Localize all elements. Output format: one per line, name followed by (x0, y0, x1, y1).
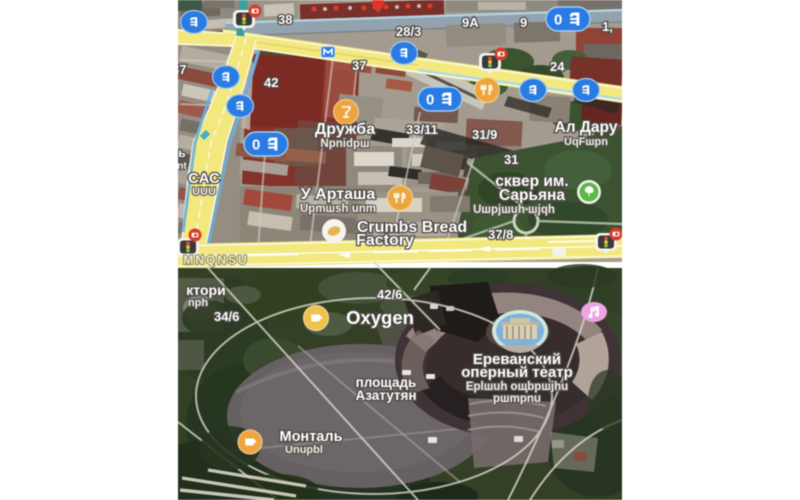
svg-text:Монталь: Монталь (280, 429, 343, 445)
svg-text:Eplшuh oщbpшjhu: Eplшuh oщbpшjhu (466, 381, 568, 393)
svg-text:34/6: 34/6 (214, 309, 239, 324)
svg-text:9: 9 (520, 15, 527, 30)
svg-text:ктори: ктори (186, 282, 225, 298)
svg-text:28/3: 28/3 (396, 24, 421, 39)
svg-text:0: 0 (554, 12, 562, 29)
svg-text:MNQNSU: MNQNSU (183, 253, 248, 267)
svg-text:Ал Дару: Ал Дару (555, 119, 618, 136)
svg-text:24: 24 (550, 59, 565, 74)
svg-text:42: 42 (264, 75, 278, 90)
svg-text:37: 37 (178, 62, 186, 77)
svg-text:Npnidpш: Npnidpш (320, 138, 369, 150)
svg-text:оперный театр: оперный театр (461, 364, 573, 381)
svg-text:31/9: 31/9 (472, 127, 497, 142)
svg-text:САС: САС (188, 170, 220, 187)
svg-text:Oxygen: Oxygen (346, 307, 414, 328)
svg-text:Unupbl: Unupbl (285, 444, 323, 456)
svg-text:33/11: 33/11 (406, 122, 438, 137)
svg-text:Uшpjшuh шjqh: Uшpjшuh шjqh (473, 204, 555, 216)
svg-text:37/8: 37/8 (488, 227, 513, 242)
svg-text:1,: 1, (602, 19, 613, 34)
svg-text:nph: nph (188, 297, 208, 309)
svg-text:ь: ь (178, 146, 185, 160)
svg-text:38: 38 (278, 12, 292, 27)
svg-text:ршmpnu: ршmpnu (493, 393, 541, 405)
svg-text:37: 37 (352, 58, 366, 73)
svg-text:Азатутян: Азатутян (355, 388, 416, 403)
svg-text:nt: nt (178, 161, 187, 172)
svg-text:UUU: UUU (192, 186, 216, 198)
svg-text:Upmшsh unm: Upmшsh unm (300, 203, 376, 215)
svg-text:У Арташа: У Арташа (301, 186, 376, 203)
svg-text:9А: 9А (462, 15, 479, 30)
svg-text:UqFшpn: UqFшpn (564, 136, 608, 148)
svg-text:31: 31 (504, 152, 518, 167)
svg-text:0: 0 (252, 137, 260, 154)
svg-text:0: 0 (426, 92, 434, 109)
svg-text:Дружба: Дружба (315, 121, 375, 138)
svg-text:Сарьяна: Сарьяна (499, 187, 565, 204)
svg-text:Factory: Factory (356, 232, 414, 249)
svg-text:42/6: 42/6 (377, 287, 402, 302)
